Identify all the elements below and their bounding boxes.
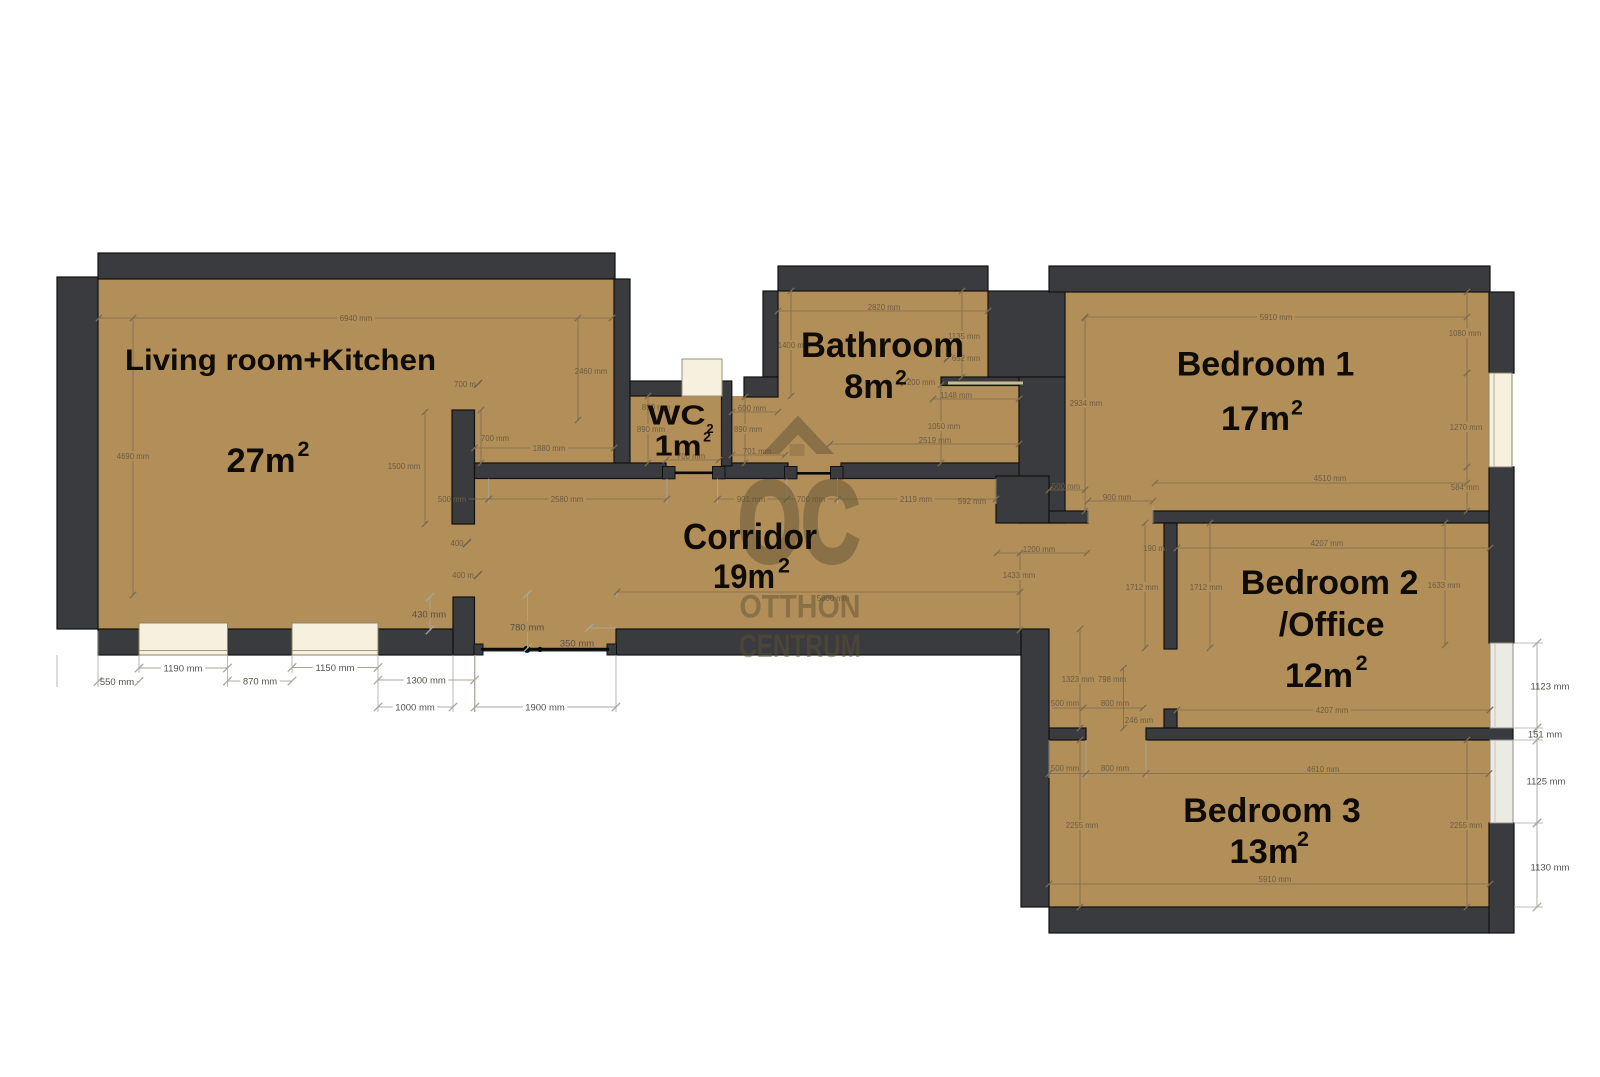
svg-text:2580 mm: 2580 mm [551,495,584,504]
svg-text:4207 mm: 4207 mm [1316,706,1349,715]
svg-text:2255 mm: 2255 mm [1450,821,1483,830]
svg-text:151 mm: 151 mm [1528,729,1562,740]
svg-text:1900 mm: 1900 mm [525,702,565,713]
svg-text:2519 mm: 2519 mm [919,436,952,445]
svg-text:500 mm: 500 mm [1052,482,1080,491]
svg-text:Bathroom: Bathroom [801,326,964,365]
svg-text:19m: 19m [713,558,775,596]
svg-text:CENTRUM: CENTRUM [739,628,861,664]
svg-text:5910 mm: 5910 mm [1260,313,1293,322]
svg-text:1150 mm: 1150 mm [316,663,355,674]
svg-text:1050 mm: 1050 mm [928,422,961,431]
svg-text:1270 mm: 1270 mm [1450,423,1483,432]
svg-text:13m: 13m [1229,833,1298,871]
svg-text:2: 2 [703,429,711,445]
svg-text:246 mm: 246 mm [1125,716,1153,725]
svg-text:870 mm: 870 mm [243,676,277,687]
svg-text:2: 2 [1297,827,1309,851]
svg-text:2934 mm: 2934 mm [1070,399,1103,408]
svg-text:1300 mm: 1300 mm [406,675,446,686]
svg-text:2460 mm: 2460 mm [575,367,608,376]
svg-text:1130 mm: 1130 mm [1531,862,1570,873]
svg-text:400 m: 400 m [452,571,474,580]
svg-text:800 mm: 800 mm [1101,764,1129,773]
svg-text:800 mm: 800 mm [1101,699,1129,708]
svg-text:6940 mm: 6940 mm [340,314,373,323]
svg-text:4207 mm: 4207 mm [1311,539,1344,548]
svg-text:1080 mm: 1080 mm [1449,329,1482,338]
svg-text:798 mm: 798 mm [1098,675,1126,684]
svg-text:2255 mm: 2255 mm [1066,821,1099,830]
svg-text:500 mm: 500 mm [1051,699,1079,708]
svg-text:1125 mm: 1125 mm [1527,776,1566,787]
svg-text:5910 mm: 5910 mm [1259,875,1292,884]
svg-text:600 mm: 600 mm [738,404,766,413]
svg-text:2: 2 [298,437,310,461]
svg-text:400: 400 [450,539,464,548]
svg-text:2: 2 [1356,651,1368,675]
svg-text:1323 mm: 1323 mm [1062,675,1095,684]
svg-text:2: 2 [1291,396,1303,420]
svg-text:1200 mm: 1200 mm [1023,545,1056,554]
svg-text:1633 mm: 1633 mm [1428,581,1461,590]
svg-text:Bedroom 3: Bedroom 3 [1183,792,1361,830]
svg-text:1148 mm: 1148 mm [940,391,972,400]
svg-text:780 mm: 780 mm [510,622,544,633]
svg-text:1712 mm: 1712 mm [1126,583,1159,592]
svg-text:17m: 17m [1221,400,1290,438]
svg-text:350 mm: 350 mm [560,638,594,649]
svg-text:Bedroom 2: Bedroom 2 [1241,564,1419,602]
svg-text:Bedroom 1: Bedroom 1 [1177,346,1355,384]
svg-text:2820 mm: 2820 mm [868,303,901,312]
svg-text:8m: 8m [844,368,894,406]
svg-text:500 mm: 500 mm [1051,764,1079,773]
svg-text:Living room+Kitchen: Living room+Kitchen [125,344,436,377]
svg-text:900 mm: 900 mm [1103,493,1131,502]
svg-text:2: 2 [778,554,790,578]
svg-text:Corridor: Corridor [683,516,817,557]
svg-text:500 mm: 500 mm [438,495,466,504]
svg-text:1433 mm: 1433 mm [1003,571,1036,580]
svg-text:430 mm: 430 mm [412,609,446,620]
svg-text:1880 mm: 1880 mm [533,444,566,453]
svg-text:1190 mm: 1190 mm [164,663,203,674]
svg-text:4610 mm: 4610 mm [1307,765,1340,774]
svg-text:12m: 12m [1285,657,1353,695]
svg-text:700 mm: 700 mm [481,434,509,443]
svg-text:890 mm: 890 mm [734,425,762,434]
svg-text:2: 2 [895,367,907,390]
svg-text:WC: WC [648,400,706,431]
svg-text:584 mm: 584 mm [1451,483,1479,492]
svg-text:1m: 1m [655,431,702,463]
svg-text:700 m: 700 m [454,380,476,389]
svg-text:1123 mm: 1123 mm [1531,681,1570,692]
svg-text:1712 mm: 1712 mm [1190,583,1223,592]
svg-text:4690 mm: 4690 mm [117,452,150,461]
svg-text:/Office: /Office [1279,606,1385,644]
svg-text:27m: 27m [226,442,295,480]
svg-text:2119 mm: 2119 mm [900,495,932,504]
svg-text:200 mm: 200 mm [907,378,935,387]
svg-text:1000 mm: 1000 mm [395,702,435,713]
svg-text:190 m: 190 m [1143,544,1165,553]
svg-text:4510 mm: 4510 mm [1314,474,1347,483]
svg-text:1500 mm: 1500 mm [388,462,421,471]
svg-text:592 mm: 592 mm [958,497,986,506]
svg-text:550 mm: 550 mm [100,677,134,688]
